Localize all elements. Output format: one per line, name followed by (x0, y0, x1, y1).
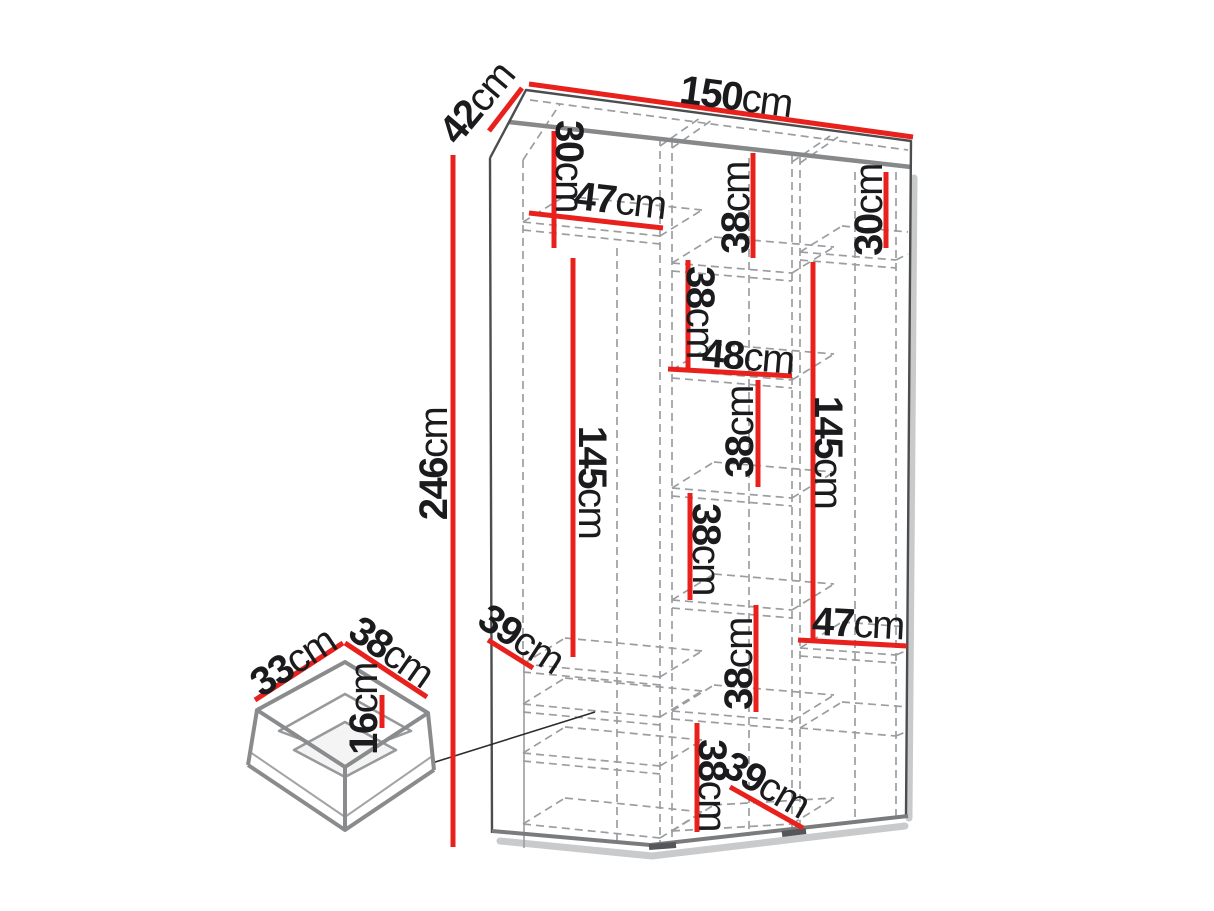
label-mid-compartment-3: 38cm (718, 386, 762, 478)
label-right-hanging: 145cm (806, 396, 850, 509)
label-total-height: 246cm (412, 408, 456, 521)
label-right-top-shelf: 30cm (847, 164, 891, 256)
label-left-hanging: 145cm (570, 426, 614, 539)
diagram-canvas: 150cm 42cm 246cm 30cm 47cm 145cm 39cm 38… (0, 0, 1214, 911)
label-mid-compartment-4: 38cm (684, 503, 728, 595)
label-mid-compartment-5: 38cm (717, 618, 761, 710)
label-mid-width: 48cm (700, 331, 795, 383)
label-right-width: 47cm (811, 600, 905, 649)
wardrobe-dimension-diagram: 150cm 42cm 246cm 30cm 47cm 145cm 39cm 38… (0, 0, 1214, 911)
label-mid-compartment-1: 38cm (714, 162, 758, 254)
label-drawer-height: 16cm (342, 663, 386, 755)
